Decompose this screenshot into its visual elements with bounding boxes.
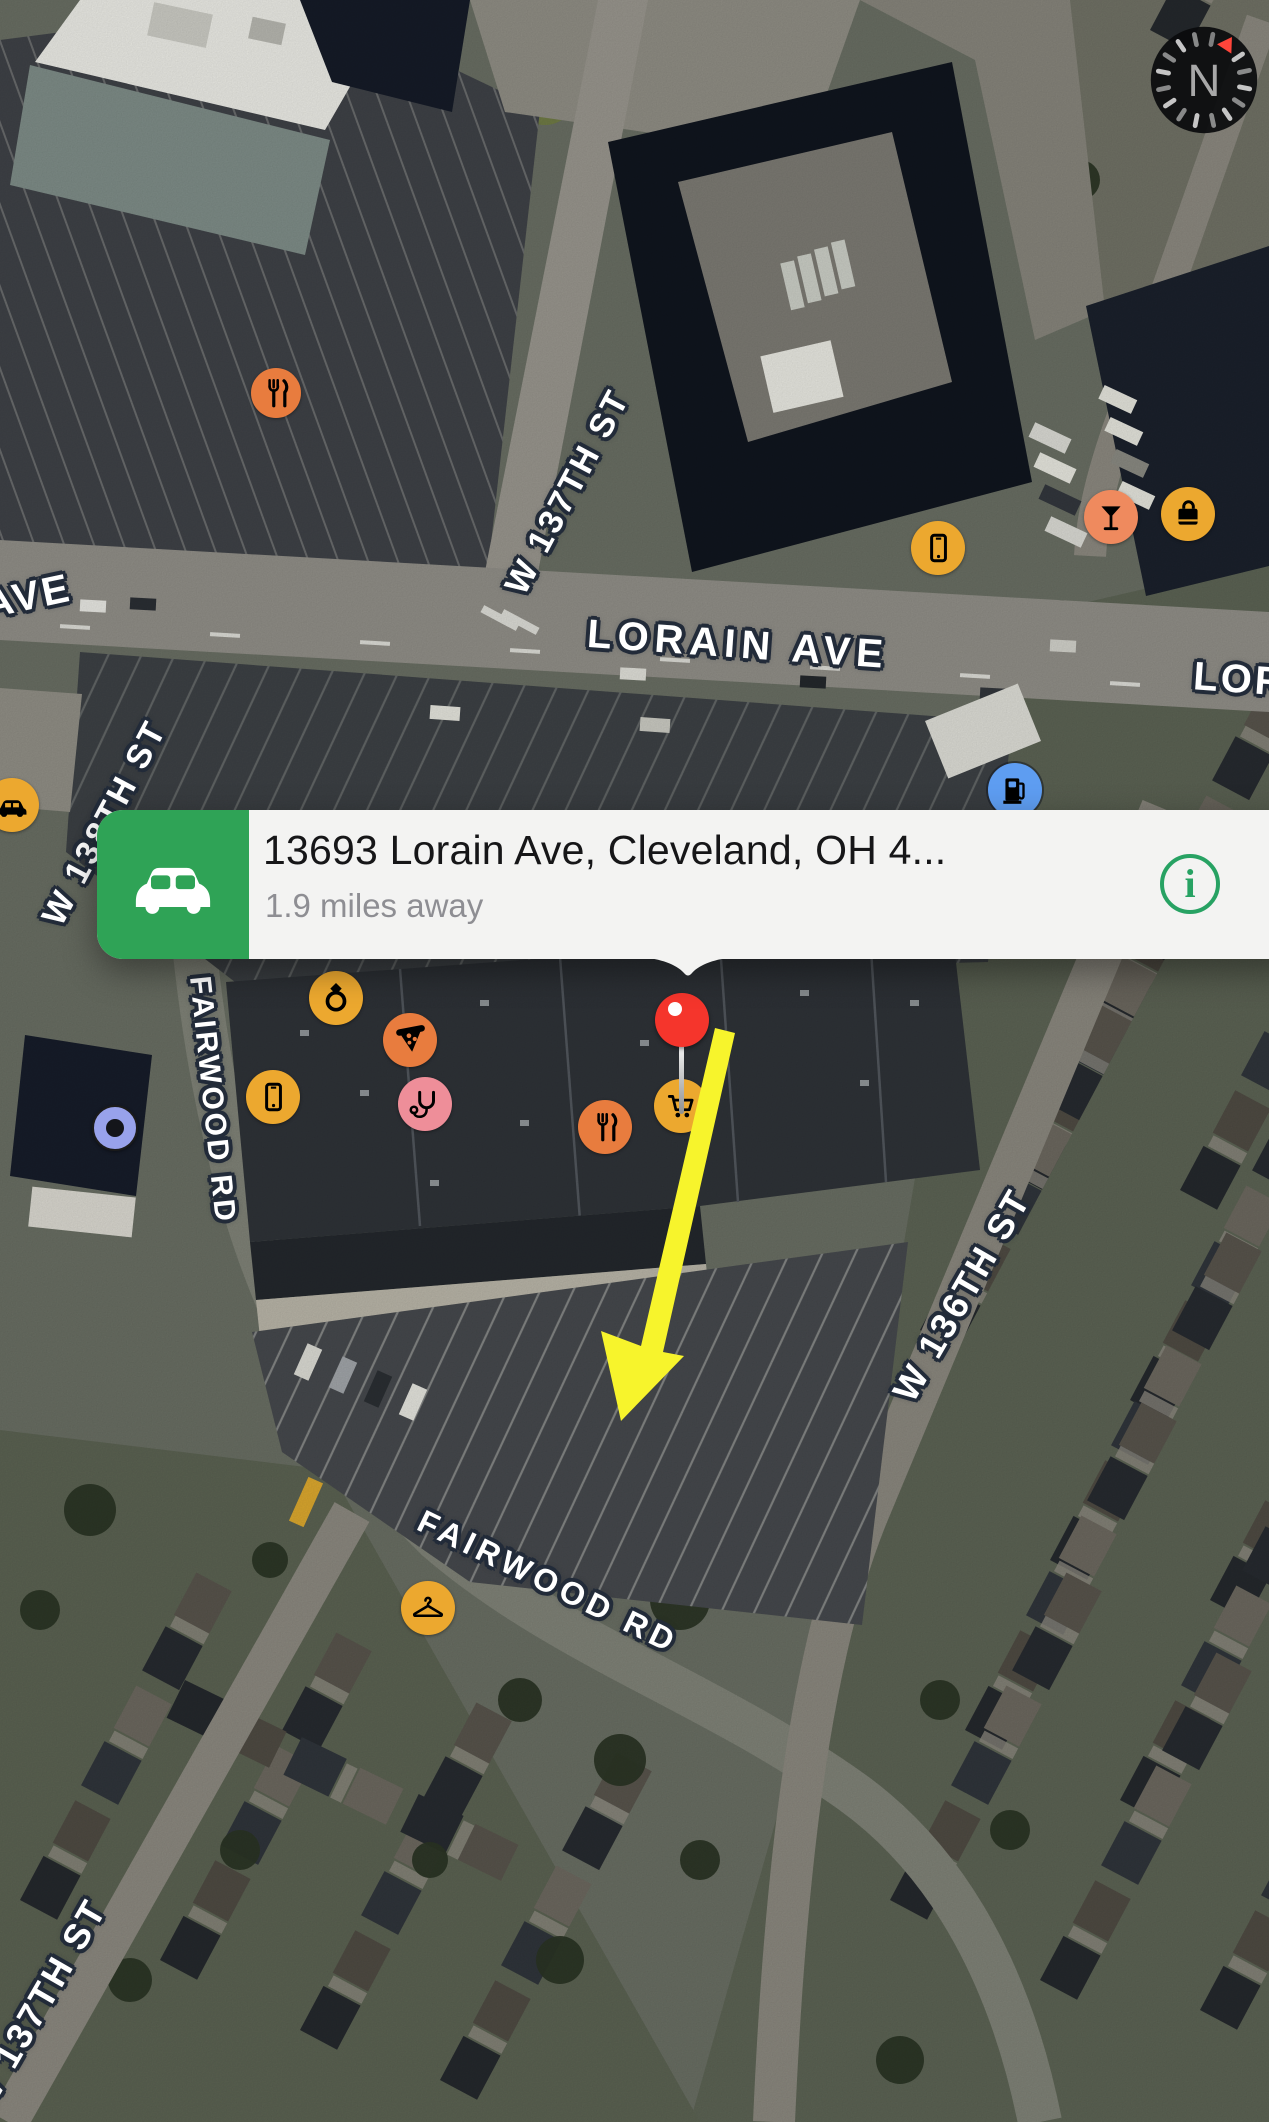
clothing-poi-icon[interactable] (401, 1581, 455, 1635)
ring-icon (319, 981, 353, 1015)
compass-north-label: N (1188, 55, 1221, 106)
maps-app-screen: AVE W 137TH ST LORAIN AVE LOR W 138TH ST… (0, 0, 1269, 2122)
callout-distance: 1.9 miles away (265, 887, 483, 925)
jewelry-poi-icon[interactable] (309, 971, 363, 1025)
medical-poi-icon[interactable] (398, 1077, 452, 1131)
transport-badge (97, 810, 249, 959)
generic-place-dot[interactable] (92, 1105, 138, 1151)
fuel-poi-icon[interactable] (988, 763, 1042, 817)
smartphone-icon (921, 531, 955, 565)
info-button[interactable]: i (1160, 854, 1220, 914)
shopping-bag-icon (1171, 497, 1205, 531)
pin-highlight (668, 1002, 682, 1016)
smartphone-icon (256, 1080, 290, 1114)
smartphone-poi-icon[interactable] (911, 521, 965, 575)
place-dot-center (106, 1119, 124, 1137)
fuel-pump-icon (998, 773, 1032, 807)
cocktail-icon (1094, 500, 1128, 534)
pizza-icon (393, 1023, 427, 1057)
restaurant-poi-icon-2[interactable] (578, 1100, 632, 1154)
compass-button[interactable]: N (1147, 23, 1261, 137)
fork-knife-icon (588, 1110, 622, 1144)
fork-knife-icon (259, 376, 293, 410)
smartphone-poi-icon-2[interactable] (246, 1070, 300, 1124)
cocktail-poi-icon[interactable] (1084, 490, 1138, 544)
shopping-bag-poi-icon[interactable] (1161, 487, 1215, 541)
car-icon (129, 852, 217, 918)
callout-tail (640, 957, 736, 977)
street-label-lorain-right: LOR (1192, 654, 1269, 705)
place-callout-card[interactable]: 13693 Lorain Ave, Cleveland, OH 4... 1.9… (97, 810, 1269, 959)
restaurant-poi-icon[interactable] (251, 368, 301, 418)
dropped-pin[interactable] (655, 993, 709, 1047)
info-glyph: i (1184, 864, 1195, 904)
stethoscope-icon (408, 1087, 442, 1121)
hanger-icon (411, 1591, 445, 1625)
pin-stem (679, 1038, 684, 1114)
car-icon (0, 788, 29, 822)
callout-address: 13693 Lorain Ave, Cleveland, OH 4... (263, 827, 946, 874)
pizza-poi-icon[interactable] (383, 1013, 437, 1067)
